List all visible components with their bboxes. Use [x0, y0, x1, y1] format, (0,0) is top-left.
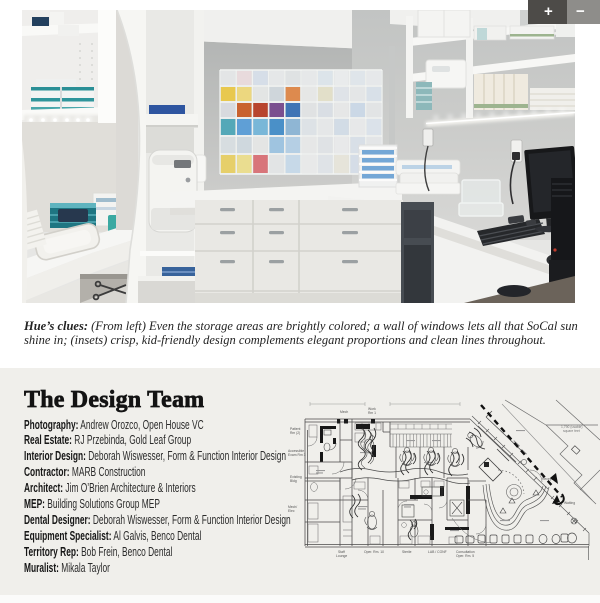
svg-text:Lounge: Lounge — [336, 554, 347, 558]
svg-text:Mech: Mech — [340, 410, 348, 414]
svg-text:1,790 (usable): 1,790 (usable) — [561, 425, 582, 429]
svg-text:Existing: Existing — [290, 475, 302, 479]
svg-text:Bldg: Bldg — [290, 479, 297, 483]
svg-text:Oper. Rm. 5: Oper. Rm. 5 — [456, 554, 474, 558]
svg-text:Rm (2): Rm (2) — [290, 431, 300, 435]
svg-text:Elec: Elec — [288, 509, 295, 513]
svg-text:Patient: Patient — [290, 427, 301, 431]
svg-text:Exam Rm 3: Exam Rm 3 — [288, 453, 306, 457]
svg-text:Accessible: Accessible — [288, 449, 304, 453]
svg-text:Consultation: Consultation — [456, 550, 475, 554]
svg-text:Work: Work — [368, 407, 376, 411]
svg-text:Sterile: Sterile — [402, 550, 412, 554]
svg-text:Rm 1: Rm 1 — [368, 411, 376, 415]
svg-text:Oper. Rm. 10: Oper. Rm. 10 — [364, 550, 384, 554]
svg-text:Mech/: Mech/ — [288, 505, 297, 509]
svg-text:LAB / CONF: LAB / CONF — [428, 550, 447, 554]
svg-text:Staff: Staff — [338, 550, 345, 554]
svg-text:square feet: square feet — [563, 429, 580, 433]
svg-text:Waiting: Waiting — [564, 501, 575, 505]
